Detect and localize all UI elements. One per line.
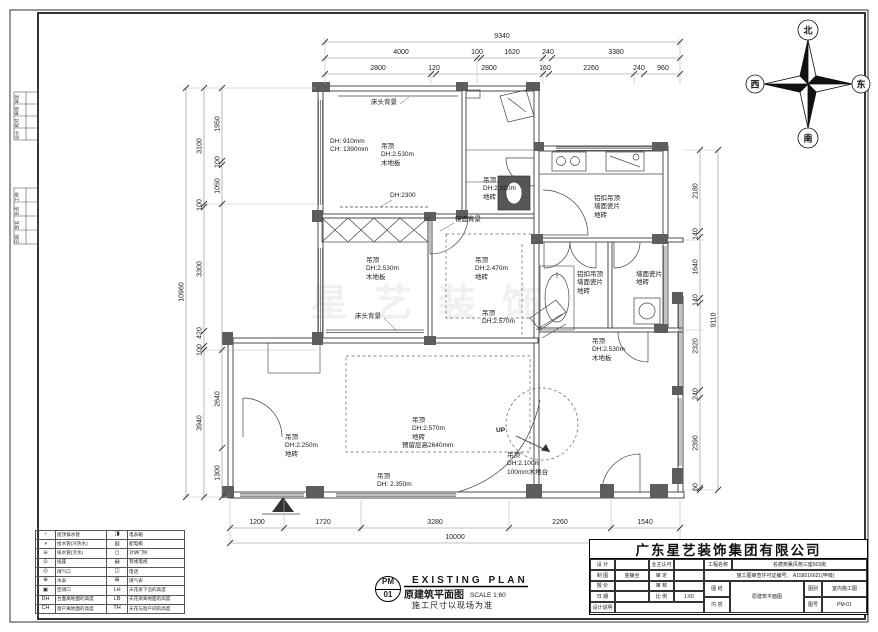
- legend-label: 煤气表: [128, 577, 185, 586]
- dim-right: 2390: [693, 435, 700, 451]
- tb-label: 工程名称: [704, 559, 732, 570]
- label-bed1-headboard: 床头背景: [371, 99, 397, 107]
- legend-row: ⊕ 水表 ⊞ 煤气表: [36, 577, 185, 586]
- legend-label: 天花与窗户间的高度: [128, 604, 185, 613]
- label-bed2-headboard: 床头背景: [355, 313, 381, 321]
- legend-symbol: ⊙: [36, 558, 56, 567]
- legend-label: 窗户离地面的高度: [56, 604, 107, 613]
- label-kitchen-finishes: 铝扣吊顶 墙面瓷片 地砖: [594, 195, 620, 220]
- tb-label: 图别: [804, 581, 822, 597]
- title-block-left-grid: 设 计 业主认可 制 图 金静全 审 定 报 价 审 核 日 期 比 例 1:6…: [590, 559, 704, 613]
- legend-symbol: ◫: [107, 567, 128, 576]
- dim-top: 100: [471, 49, 483, 56]
- dim-right: 2180: [693, 183, 700, 199]
- margin-cell-label: 审核: [15, 107, 21, 116]
- label-mirror-background: 镜面背景: [455, 216, 481, 224]
- dim-top-total: 9340: [494, 33, 510, 40]
- label-hall-ceiling: 吊顶 DH:2.570m: [482, 310, 515, 327]
- margin-cell-label: 日期: [15, 235, 21, 244]
- dim-top: 4000: [393, 49, 409, 56]
- tb-value: [615, 559, 649, 570]
- legend-row: ⊖ 排水管(污水) ◻ 对讲门铃: [36, 549, 185, 558]
- dim-top: 3380: [608, 49, 624, 56]
- tb-value: [615, 591, 649, 602]
- title-block-right-grid: 工程名称 名德苑薰风苑三座503房 施工图审查许可证编号： A158016621…: [704, 559, 867, 613]
- legend-symbol: ○: [36, 531, 56, 540]
- legend-label: 天花梁离地面的高度: [128, 595, 185, 604]
- dim-right: 140: [693, 228, 700, 240]
- legend-symbol: DH: [36, 595, 56, 604]
- dim-top: 2800: [481, 65, 497, 72]
- legend-symbol: LH: [107, 586, 128, 595]
- tb-label: 审 核: [649, 581, 674, 592]
- dim-right: 2320: [693, 338, 700, 354]
- dim-left: 3100: [197, 138, 204, 154]
- company-name: 广东星艺装饰集团有限公司: [590, 540, 867, 559]
- dim-top: 120: [428, 65, 440, 72]
- margin-cell-label: 负责: [15, 207, 21, 216]
- watermark: 星艺装饰: [310, 272, 566, 327]
- tb-label: 比 例: [649, 591, 674, 602]
- dim-left: 100: [215, 156, 222, 168]
- tb-label: 业主认可: [649, 559, 674, 570]
- label-hall-top-ceiling: 吊顶 DH:2.320m 地砖: [483, 177, 516, 202]
- caption-scale: SCALE 1:60: [470, 592, 506, 600]
- label-bath2-finishes: 铝扣吊顶 墙面瓷片 地砖: [577, 271, 603, 296]
- legend-label: 排水管(污水): [56, 549, 107, 558]
- label-stair-platform: 吊顶 DH:2.100m 100mm木地台: [507, 452, 548, 477]
- label-bed2-ceiling: 吊顶 DH:2.530m 木地板: [366, 257, 399, 282]
- tb-label: 内 容: [704, 597, 730, 613]
- dim-bottom: 1200: [249, 519, 265, 526]
- label-stairs-up: UP: [496, 427, 505, 435]
- label-porch-ceiling: 吊顶 DH: 2.350m: [377, 473, 412, 490]
- dim-left: 3300: [197, 261, 204, 277]
- legend-symbol: ◎: [36, 567, 56, 576]
- caption-title-en: EXISTING PLAN: [412, 574, 528, 587]
- caption-note: 施工尺寸以现场为准: [412, 601, 493, 611]
- margin-cell-label: 校对: [15, 119, 21, 128]
- dim-bottom: 1540: [637, 519, 653, 526]
- dim-left-total: 10960: [179, 282, 186, 301]
- dim-right: 1640: [693, 259, 700, 275]
- compass-east-label: 东: [856, 78, 865, 91]
- tb-label: 设 计: [590, 559, 615, 570]
- legend-row: ○ 屋顶排水管 ◨ 电表箱: [36, 531, 185, 540]
- legend-label: 配电箱: [128, 540, 185, 549]
- dim-right: 60: [693, 483, 700, 491]
- legend-symbol: ⊕: [36, 577, 56, 586]
- label-utility-finishes: 墙面瓷片 地砖: [636, 271, 662, 288]
- dim-right-total: 9110: [711, 312, 718, 327]
- compass-north-label: 北: [803, 24, 812, 37]
- legend-label: 煤气口: [56, 567, 107, 576]
- legend-label: 电表箱: [128, 531, 185, 540]
- legend-label: 天花梁下沿的高度: [128, 586, 185, 595]
- label-bed1-dh2300: DH:2300: [390, 192, 416, 200]
- dim-left: 3940: [197, 415, 204, 431]
- legend-label: 电话: [128, 567, 185, 576]
- drawing-sheet: 星艺装饰 审定 审核 校对 设计 工种 负责 签名 日期 北 南 东 西 934…: [0, 0, 878, 632]
- tb-label: 报 价: [590, 581, 615, 592]
- tb-sheet-value: 原建筑平面图: [730, 581, 804, 613]
- dim-left: 1300: [215, 465, 222, 481]
- tb-value: 1:60: [674, 591, 704, 602]
- margin-cell-label: 工种: [15, 193, 21, 202]
- legend-row: DH 台面离地面的高度 LB 天花梁离地面的高度: [36, 595, 185, 604]
- legend-symbol: ◑: [36, 540, 56, 549]
- tb-value: [674, 581, 704, 592]
- legend-symbol: ⊞: [107, 577, 128, 586]
- dim-top: 1620: [504, 49, 520, 56]
- dim-bottom: 3280: [427, 519, 443, 526]
- dim-left: 1050: [215, 178, 222, 194]
- compass-star-icon: [746, 20, 870, 148]
- legend-symbol: ▣: [36, 586, 56, 595]
- legend-row: ◎ 煤气口 ◫ 电话: [36, 567, 185, 576]
- drawing-number-bubble: PM 01: [375, 576, 401, 602]
- dim-left: 1950: [215, 116, 222, 132]
- legend-symbol: ◻: [107, 549, 128, 558]
- dim-bottom-total: 10000: [445, 534, 464, 541]
- label-living-ceiling: 吊顶 DH:2.570m 地砖: [412, 417, 445, 442]
- tb-project-value: 名德苑薰风苑三座503房: [732, 559, 867, 570]
- label-dining-ceiling: 吊顶 DH:2.470m 地砖: [475, 257, 508, 282]
- drawing-code-bottom: 01: [376, 589, 400, 602]
- margin-cell-label: 设计: [15, 131, 21, 140]
- title-block: 广东星艺装饰集团有限公司 设 计 业主认可 制 图 金静全 审 定 报 价 审 …: [589, 539, 868, 615]
- compass-south-label: 南: [803, 132, 812, 145]
- tb-label: 制 图: [590, 570, 615, 581]
- legend-row: CH 窗户离地面的高度 TH 天花与窗户间的高度: [36, 604, 185, 613]
- legend-label: 屋顶排水管: [56, 531, 107, 540]
- tb-value: [674, 559, 704, 570]
- tb-label: 审 定: [649, 570, 674, 581]
- dim-bottom: 2260: [552, 519, 568, 526]
- tb-type-value: 室内施工图: [822, 581, 867, 597]
- label-bed1-ceiling: 吊顶 DH:2.530m 木地板: [381, 143, 414, 168]
- dim-left: 100: [197, 344, 204, 356]
- label-living-beam-height: 预留层高2640mm: [402, 442, 453, 450]
- label-bed1-window-heights: DH: 910mm CH: 1390mm: [330, 138, 368, 155]
- tb-label: 日 期: [590, 591, 615, 602]
- margin-cell-label: 审定: [15, 95, 21, 104]
- tb-permit: 施工图审查许可证编号： A158016621(甲级): [704, 570, 867, 581]
- dim-bottom: 1720: [315, 519, 331, 526]
- tb-value: [615, 581, 649, 592]
- legend-label: 对讲门铃: [128, 549, 185, 558]
- tb-drawing-number: PM-01: [822, 597, 867, 613]
- legend-row: ⊙ 插座 ▤ 有线电视: [36, 558, 185, 567]
- legend-row: ◑ 给水管(冷热水) ▥ 配电箱: [36, 540, 185, 549]
- tb-label: 图号: [804, 597, 822, 613]
- margin-cell-label: 签名: [15, 221, 21, 230]
- dim-top: 160: [539, 65, 551, 72]
- dim-top: 960: [657, 65, 669, 72]
- dim-left: 2640: [215, 391, 222, 407]
- legend-symbol: ▥: [107, 540, 128, 549]
- tb-value: [674, 570, 704, 581]
- dim-left: 100: [197, 199, 204, 211]
- dim-right: 240: [693, 388, 700, 400]
- dim-top: 240: [542, 49, 554, 56]
- dim-left: 420: [197, 327, 204, 339]
- label-bed3-ceiling: 吊顶 DH:2.530m 木地板: [592, 338, 625, 363]
- tb-label: 设计说明: [590, 602, 615, 613]
- tb-value: 金静全: [615, 570, 649, 581]
- legend-row: ▣ 空调口 LH 天花梁下沿的高度: [36, 586, 185, 595]
- legend-label: 插座: [56, 558, 107, 567]
- label-entry-ceiling: 吊顶 DH:2.250m 地砖: [285, 434, 318, 459]
- legend-label: 有线电视: [128, 558, 185, 567]
- dim-top: 2260: [583, 65, 599, 72]
- legend-label: 台面离地面的高度: [56, 595, 107, 604]
- legend-label: 水表: [56, 577, 107, 586]
- legend-symbol: ▤: [107, 558, 128, 567]
- legend-symbol: CH: [36, 604, 56, 613]
- drawing-code-top: PM: [376, 577, 400, 589]
- dim-top: 240: [633, 65, 645, 72]
- legend-symbol: ◨: [107, 531, 128, 540]
- tb-label: 图 纸: [704, 581, 730, 597]
- legend-symbol: TH: [107, 604, 128, 613]
- tb-value: [615, 602, 704, 613]
- legend-label: 给水管(冷热水): [56, 540, 107, 549]
- compass-west-label: 西: [750, 78, 759, 91]
- legend-label: 空调口: [56, 586, 107, 595]
- legend-symbol: LB: [107, 595, 128, 604]
- dim-top: 2800: [370, 65, 386, 72]
- legend-table: ○ 屋顶排水管 ◨ 电表箱 ◑ 给水管(冷热水) ▥ 配电箱 ⊖ 排水管(污水)…: [35, 530, 185, 614]
- dim-right: 140: [693, 294, 700, 306]
- legend-symbol: ⊖: [36, 549, 56, 558]
